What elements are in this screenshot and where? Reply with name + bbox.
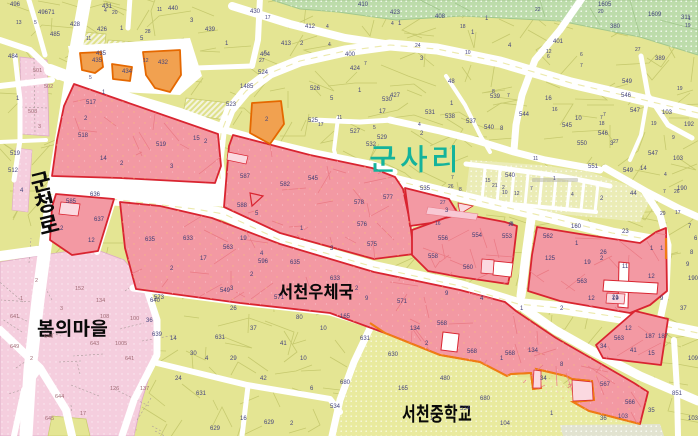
svg-text:428: 428 bbox=[70, 22, 81, 28]
svg-text:165: 165 bbox=[398, 386, 409, 392]
svg-text:103: 103 bbox=[618, 414, 629, 420]
svg-text:11: 11 bbox=[157, 7, 162, 13]
svg-text:34: 34 bbox=[600, 344, 607, 350]
svg-text:518: 518 bbox=[78, 133, 89, 139]
svg-text:538: 538 bbox=[445, 114, 456, 120]
svg-text:530: 530 bbox=[382, 97, 393, 103]
svg-text:17: 17 bbox=[675, 210, 681, 216]
svg-text:17: 17 bbox=[200, 256, 207, 262]
svg-text:648: 648 bbox=[44, 334, 53, 340]
svg-text:5: 5 bbox=[89, 75, 92, 81]
svg-text:126: 126 bbox=[110, 386, 119, 392]
svg-text:680: 680 bbox=[480, 396, 491, 402]
svg-text:19: 19 bbox=[685, 23, 691, 29]
svg-text:16: 16 bbox=[240, 416, 247, 422]
svg-text:6: 6 bbox=[580, 52, 583, 58]
svg-text:531: 531 bbox=[425, 110, 436, 116]
svg-text:134: 134 bbox=[410, 326, 421, 332]
svg-text:125: 125 bbox=[545, 256, 556, 262]
svg-text:12: 12 bbox=[88, 238, 95, 244]
svg-text:12: 12 bbox=[648, 274, 655, 280]
svg-text:649: 649 bbox=[10, 344, 19, 350]
svg-text:22: 22 bbox=[535, 7, 541, 13]
svg-text:413: 413 bbox=[281, 41, 292, 47]
svg-text:551: 551 bbox=[588, 164, 599, 170]
svg-text:1: 1 bbox=[688, 16, 691, 22]
svg-text:435: 435 bbox=[92, 58, 103, 64]
svg-text:532: 532 bbox=[366, 142, 377, 148]
svg-text:526: 526 bbox=[310, 86, 321, 92]
svg-text:389: 389 bbox=[655, 56, 666, 62]
svg-text:104: 104 bbox=[500, 421, 511, 427]
svg-text:680: 680 bbox=[340, 380, 351, 386]
svg-text:440: 440 bbox=[168, 6, 179, 12]
svg-text:501: 501 bbox=[33, 68, 42, 74]
svg-text:588: 588 bbox=[237, 203, 248, 209]
svg-text:644: 644 bbox=[55, 394, 64, 400]
svg-text:27: 27 bbox=[259, 58, 265, 64]
svg-text:16: 16 bbox=[435, 221, 441, 227]
svg-text:549: 549 bbox=[623, 168, 634, 174]
svg-text:630: 630 bbox=[388, 352, 399, 358]
svg-text:103: 103 bbox=[688, 416, 698, 422]
svg-text:540: 540 bbox=[505, 173, 516, 179]
svg-text:2: 2 bbox=[35, 278, 38, 284]
svg-text:19: 19 bbox=[612, 296, 619, 302]
svg-text:547: 547 bbox=[630, 108, 641, 114]
svg-text:556: 556 bbox=[438, 236, 449, 242]
svg-text:10: 10 bbox=[575, 116, 582, 122]
svg-text:16: 16 bbox=[552, 107, 558, 113]
svg-text:14: 14 bbox=[640, 166, 647, 172]
svg-text:12: 12 bbox=[514, 191, 520, 197]
svg-text:37: 37 bbox=[250, 326, 257, 332]
svg-text:10: 10 bbox=[465, 50, 471, 56]
svg-text:585: 585 bbox=[66, 199, 77, 205]
svg-text:4: 4 bbox=[104, 8, 107, 14]
svg-text:480: 480 bbox=[440, 376, 451, 382]
svg-text:41: 41 bbox=[630, 348, 637, 354]
svg-text:42: 42 bbox=[260, 376, 267, 382]
svg-text:103: 103 bbox=[662, 110, 673, 116]
svg-text:629: 629 bbox=[264, 420, 275, 426]
svg-text:134: 134 bbox=[96, 298, 105, 304]
svg-text:109: 109 bbox=[688, 356, 698, 362]
svg-text:540: 540 bbox=[484, 125, 495, 131]
svg-text:432: 432 bbox=[158, 60, 169, 66]
svg-text:15: 15 bbox=[485, 178, 491, 184]
svg-text:192: 192 bbox=[684, 122, 695, 128]
svg-text:577: 577 bbox=[383, 195, 394, 201]
svg-text:546: 546 bbox=[621, 93, 632, 99]
svg-text:27: 27 bbox=[635, 47, 641, 53]
svg-text:7: 7 bbox=[603, 112, 606, 118]
svg-text:29: 29 bbox=[660, 211, 666, 217]
svg-text:12: 12 bbox=[625, 326, 632, 332]
svg-text:18: 18 bbox=[460, 24, 466, 30]
svg-text:631: 631 bbox=[196, 391, 207, 397]
svg-text:36: 36 bbox=[600, 416, 607, 422]
svg-text:537: 537 bbox=[466, 119, 477, 125]
svg-text:4: 4 bbox=[326, 24, 329, 30]
svg-text:636: 636 bbox=[90, 192, 101, 198]
svg-text:566: 566 bbox=[625, 400, 636, 406]
svg-text:519: 519 bbox=[10, 151, 21, 157]
svg-text:165: 165 bbox=[340, 314, 351, 320]
svg-text:7: 7 bbox=[663, 189, 666, 195]
svg-text:567: 567 bbox=[600, 382, 611, 388]
svg-text:160: 160 bbox=[571, 224, 582, 230]
svg-text:549: 549 bbox=[220, 288, 231, 294]
svg-text:137: 137 bbox=[140, 386, 149, 392]
svg-text:380: 380 bbox=[610, 24, 621, 30]
svg-text:11: 11 bbox=[533, 156, 538, 162]
svg-text:12: 12 bbox=[588, 296, 595, 302]
svg-text:568: 568 bbox=[437, 321, 448, 327]
svg-text:8: 8 bbox=[459, 187, 462, 193]
svg-text:545: 545 bbox=[308, 176, 319, 182]
svg-text:400: 400 bbox=[345, 52, 356, 58]
svg-text:412: 412 bbox=[305, 24, 316, 30]
svg-text:11: 11 bbox=[337, 115, 342, 121]
svg-text:519: 519 bbox=[156, 142, 167, 148]
svg-text:851: 851 bbox=[672, 391, 683, 397]
svg-text:3: 3 bbox=[38, 124, 41, 130]
svg-text:20: 20 bbox=[598, 9, 604, 15]
svg-text:19: 19 bbox=[651, 121, 657, 127]
svg-text:9: 9 bbox=[672, 135, 675, 141]
svg-text:484: 484 bbox=[8, 54, 19, 60]
svg-text:527: 527 bbox=[350, 129, 361, 135]
svg-text:631: 631 bbox=[215, 335, 226, 341]
svg-text:582: 582 bbox=[280, 182, 291, 188]
svg-text:23: 23 bbox=[622, 229, 629, 235]
svg-text:576: 576 bbox=[357, 222, 368, 228]
svg-text:575: 575 bbox=[367, 242, 378, 248]
svg-text:27: 27 bbox=[613, 139, 619, 145]
svg-text:554: 554 bbox=[472, 233, 483, 239]
svg-text:640: 640 bbox=[150, 298, 161, 304]
svg-text:503: 503 bbox=[28, 109, 37, 115]
svg-text:578: 578 bbox=[354, 200, 365, 206]
svg-text:37: 37 bbox=[680, 306, 687, 312]
svg-text:512: 512 bbox=[8, 168, 19, 174]
svg-text:571: 571 bbox=[397, 299, 408, 305]
svg-text:635: 635 bbox=[145, 237, 156, 243]
svg-text:547: 547 bbox=[648, 151, 659, 157]
svg-text:19: 19 bbox=[240, 236, 247, 242]
svg-text:4: 4 bbox=[571, 192, 574, 198]
svg-text:560: 560 bbox=[463, 265, 474, 271]
svg-text:5: 5 bbox=[34, 20, 37, 26]
svg-text:29: 29 bbox=[230, 356, 237, 362]
svg-text:4: 4 bbox=[328, 42, 331, 48]
svg-text:20: 20 bbox=[112, 10, 118, 16]
svg-text:24: 24 bbox=[415, 43, 421, 49]
svg-text:1609: 1609 bbox=[648, 12, 662, 18]
svg-text:187: 187 bbox=[645, 334, 656, 340]
svg-text:15: 15 bbox=[193, 136, 200, 142]
svg-text:18: 18 bbox=[599, 121, 605, 127]
svg-text:408: 408 bbox=[435, 14, 446, 20]
svg-text:629: 629 bbox=[210, 426, 221, 432]
svg-text:21: 21 bbox=[492, 183, 498, 189]
svg-text:430: 430 bbox=[250, 9, 261, 15]
svg-text:1: 1 bbox=[20, 296, 23, 302]
svg-text:49671: 49671 bbox=[38, 10, 55, 16]
svg-text:17: 17 bbox=[80, 411, 86, 417]
svg-text:426: 426 bbox=[97, 27, 108, 33]
svg-text:27: 27 bbox=[440, 200, 446, 206]
svg-text:8: 8 bbox=[510, 221, 513, 227]
svg-text:12: 12 bbox=[143, 58, 149, 64]
svg-text:549: 549 bbox=[622, 79, 633, 85]
svg-text:7: 7 bbox=[451, 175, 454, 181]
svg-text:100: 100 bbox=[130, 316, 139, 322]
svg-text:423: 423 bbox=[390, 10, 401, 16]
svg-text:587: 587 bbox=[240, 174, 251, 180]
svg-text:4: 4 bbox=[391, 21, 394, 27]
svg-text:14: 14 bbox=[170, 336, 177, 342]
svg-text:529: 529 bbox=[377, 135, 388, 141]
svg-text:563: 563 bbox=[577, 279, 588, 285]
svg-text:4: 4 bbox=[664, 172, 667, 178]
svg-text:434: 434 bbox=[122, 69, 133, 75]
svg-text:517: 517 bbox=[86, 100, 97, 106]
svg-text:6: 6 bbox=[264, 50, 267, 56]
svg-text:34: 34 bbox=[540, 376, 547, 382]
svg-text:19: 19 bbox=[584, 260, 591, 266]
svg-text:524: 524 bbox=[258, 70, 269, 76]
svg-text:152: 152 bbox=[75, 286, 84, 292]
svg-text:550: 550 bbox=[577, 141, 588, 147]
svg-text:17: 17 bbox=[265, 15, 271, 21]
svg-text:7: 7 bbox=[364, 61, 367, 67]
svg-text:1485: 1485 bbox=[240, 84, 254, 90]
svg-text:26: 26 bbox=[674, 189, 680, 195]
svg-text:535: 535 bbox=[420, 186, 431, 192]
svg-text:13: 13 bbox=[16, 20, 22, 26]
svg-text:12: 12 bbox=[546, 49, 552, 55]
svg-text:596: 596 bbox=[258, 259, 269, 265]
svg-text:544: 544 bbox=[519, 112, 530, 118]
svg-text:496: 496 bbox=[10, 2, 21, 8]
svg-text:641: 641 bbox=[10, 314, 19, 320]
svg-text:14: 14 bbox=[100, 156, 107, 162]
svg-text:26: 26 bbox=[448, 184, 454, 190]
svg-text:10: 10 bbox=[300, 356, 307, 362]
svg-text:2: 2 bbox=[30, 356, 33, 362]
svg-text:80: 80 bbox=[296, 315, 303, 321]
svg-text:16: 16 bbox=[545, 96, 552, 102]
svg-text:410: 410 bbox=[358, 2, 369, 8]
svg-text:633: 633 bbox=[330, 276, 341, 282]
svg-text:553: 553 bbox=[502, 234, 513, 240]
svg-text:637: 637 bbox=[94, 217, 105, 223]
svg-text:568: 568 bbox=[505, 351, 516, 357]
svg-text:36: 36 bbox=[146, 318, 153, 324]
svg-text:5: 5 bbox=[373, 125, 376, 131]
svg-text:108: 108 bbox=[100, 314, 109, 320]
svg-text:24: 24 bbox=[175, 376, 182, 382]
svg-text:558: 558 bbox=[428, 254, 439, 260]
svg-text:1605: 1605 bbox=[598, 2, 612, 8]
svg-text:563: 563 bbox=[223, 245, 234, 251]
svg-text:7: 7 bbox=[507, 93, 510, 99]
svg-text:17: 17 bbox=[379, 109, 386, 115]
svg-text:1: 1 bbox=[553, 176, 556, 182]
svg-text:44: 44 bbox=[630, 191, 637, 197]
svg-text:48: 48 bbox=[448, 79, 455, 85]
svg-text:571: 571 bbox=[274, 295, 285, 301]
svg-text:424: 424 bbox=[350, 66, 361, 72]
svg-text:485: 485 bbox=[50, 32, 61, 38]
svg-text:562: 562 bbox=[543, 234, 554, 240]
svg-text:563: 563 bbox=[614, 336, 625, 342]
svg-text:11: 11 bbox=[86, 36, 91, 42]
svg-text:639: 639 bbox=[152, 332, 163, 338]
svg-text:134: 134 bbox=[528, 348, 539, 354]
svg-text:7: 7 bbox=[530, 186, 533, 192]
svg-text:26: 26 bbox=[230, 306, 237, 312]
svg-text:534: 534 bbox=[460, 406, 471, 412]
svg-text:11: 11 bbox=[622, 264, 629, 270]
svg-text:41: 41 bbox=[280, 341, 287, 347]
svg-text:534: 534 bbox=[330, 404, 341, 410]
svg-text:633: 633 bbox=[183, 236, 194, 242]
svg-text:17: 17 bbox=[318, 122, 324, 128]
svg-text:546: 546 bbox=[598, 131, 609, 137]
svg-text:4: 4 bbox=[418, 122, 421, 128]
svg-text:643: 643 bbox=[90, 341, 99, 347]
svg-text:401: 401 bbox=[553, 39, 564, 45]
svg-text:187: 187 bbox=[658, 334, 669, 340]
svg-text:190: 190 bbox=[688, 276, 698, 282]
svg-text:30: 30 bbox=[190, 351, 197, 357]
svg-text:1005: 1005 bbox=[115, 341, 127, 347]
svg-text:28: 28 bbox=[145, 29, 151, 35]
svg-text:523: 523 bbox=[226, 102, 237, 108]
svg-text:10: 10 bbox=[320, 326, 327, 332]
svg-text:645: 645 bbox=[45, 416, 54, 422]
svg-text:641: 641 bbox=[125, 356, 134, 362]
svg-text:631: 631 bbox=[360, 336, 371, 342]
svg-text:8: 8 bbox=[492, 89, 495, 95]
svg-text:635: 635 bbox=[290, 260, 301, 266]
svg-text:10: 10 bbox=[502, 190, 508, 196]
svg-text:545: 545 bbox=[562, 123, 573, 129]
svg-text:7: 7 bbox=[580, 63, 583, 69]
svg-text:502: 502 bbox=[44, 84, 53, 90]
svg-text:435: 435 bbox=[96, 51, 107, 57]
svg-text:15: 15 bbox=[648, 351, 655, 357]
svg-text:568: 568 bbox=[467, 349, 478, 355]
svg-text:103: 103 bbox=[673, 156, 684, 162]
svg-text:35: 35 bbox=[648, 408, 655, 414]
svg-text:439: 439 bbox=[205, 27, 216, 33]
svg-text:3: 3 bbox=[60, 306, 63, 312]
svg-text:19: 19 bbox=[677, 86, 683, 92]
